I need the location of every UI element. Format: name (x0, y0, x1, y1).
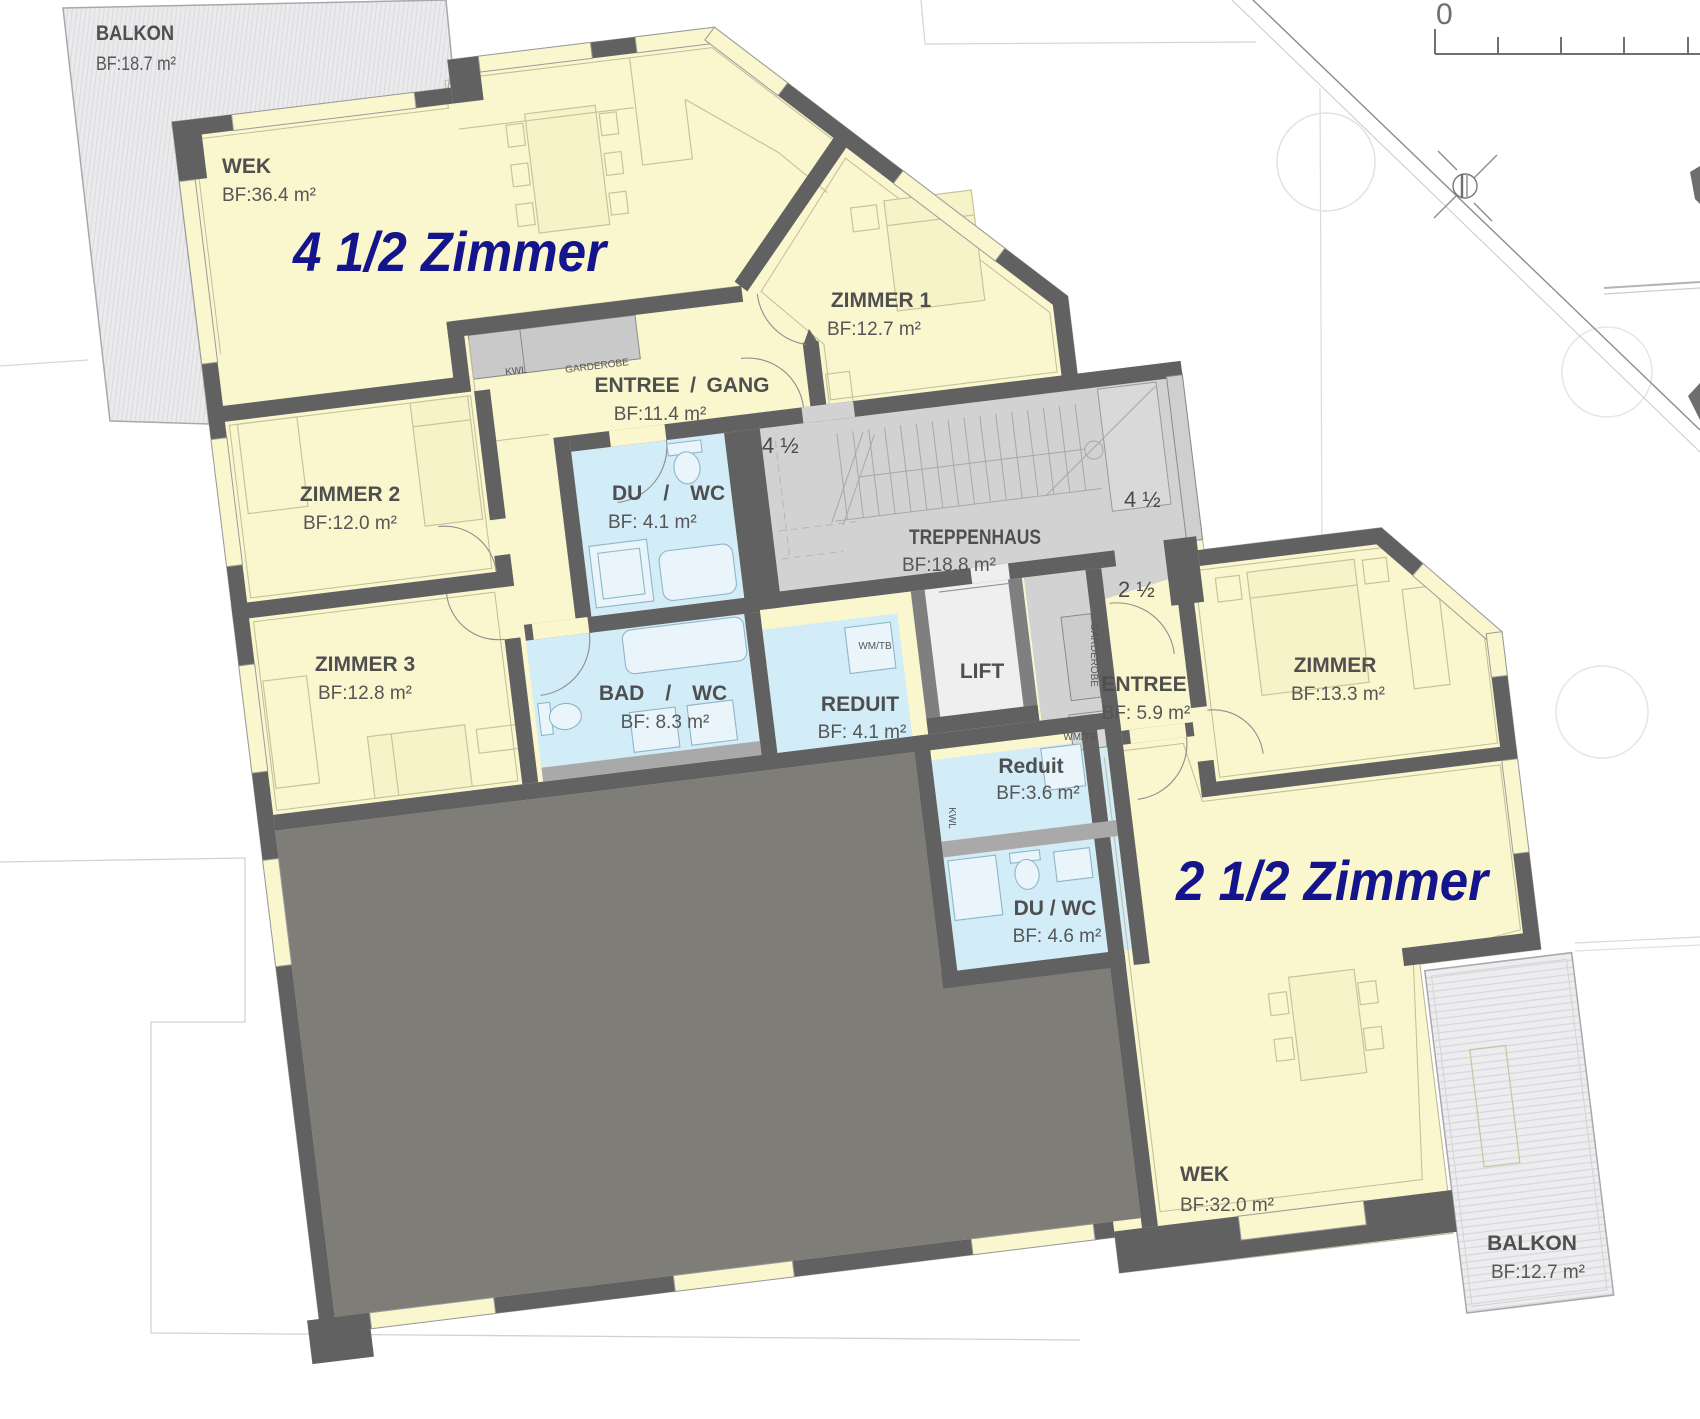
svg-text:BF:12.8 m²: BF:12.8 m² (318, 683, 412, 704)
svg-text:ZIMMER 2: ZIMMER 2 (300, 483, 400, 506)
svg-text:TREPPENHAUS: TREPPENHAUS (909, 526, 1041, 549)
svg-text:BF:12.7 m²: BF:12.7 m² (827, 319, 921, 340)
svg-text:DU / WC: DU / WC (612, 482, 725, 505)
svg-text:BF:11.4 m²: BF:11.4 m² (614, 404, 707, 425)
svg-text:BF: 4.1 m²: BF: 4.1 m² (608, 512, 697, 533)
svg-text:0: 0 (1436, 0, 1453, 31)
svg-text:Reduit: Reduit (998, 755, 1063, 778)
svg-text:BF: 4.6 m²: BF: 4.6 m² (1013, 926, 1102, 947)
svg-text:BAD / WC: BAD / WC (599, 682, 727, 705)
svg-text:4 1/2 Zimmer: 4 1/2 Zimmer (292, 220, 609, 283)
svg-text:LIFT: LIFT (960, 660, 1004, 683)
svg-text:BF:32.0 m²: BF:32.0 m² (1180, 1195, 1274, 1216)
svg-text:WEK: WEK (1180, 1163, 1229, 1186)
svg-text:WM/TB: WM/TB (1063, 732, 1097, 743)
svg-text:WEK: WEK (222, 155, 271, 178)
svg-text:ZIMMER 3: ZIMMER 3 (315, 653, 415, 676)
svg-text:BF:12.0 m²: BF:12.0 m² (303, 513, 397, 534)
svg-text:BF: 5.9 m²: BF: 5.9 m² (1102, 703, 1191, 724)
svg-text:BF:13.3 m²: BF:13.3 m² (1291, 684, 1385, 705)
svg-text:WM/TB: WM/TB (858, 641, 892, 652)
svg-text:BF: 8.3 m²: BF: 8.3 m² (621, 712, 710, 733)
svg-text:2 1/2 Zimmer: 2 1/2 Zimmer (1175, 849, 1491, 912)
svg-text:REDUIT: REDUIT (821, 693, 899, 716)
svg-text:BF:18.8 m²: BF:18.8 m² (902, 555, 996, 576)
svg-text:ZIMMER: ZIMMER (1294, 654, 1377, 677)
svg-text:DU / WC: DU / WC (1014, 897, 1097, 920)
svg-text:BF:12.7 m²: BF:12.7 m² (1491, 1262, 1585, 1283)
svg-text:BF:36.4 m²: BF:36.4 m² (222, 185, 316, 206)
svg-text:ZIMMER 1: ZIMMER 1 (831, 289, 932, 312)
svg-text:4 ½: 4 ½ (762, 433, 799, 458)
svg-text:KWL: KWL (946, 807, 957, 829)
svg-text:BF: 4.1 m²: BF: 4.1 m² (818, 722, 907, 743)
svg-text:ENTREE: ENTREE (1101, 673, 1186, 696)
svg-text:BALKON: BALKON (1487, 1232, 1577, 1255)
svg-text:ENTREE / GANG: ENTREE / GANG (594, 374, 769, 397)
svg-text:2 ½: 2 ½ (1118, 577, 1155, 602)
svg-text:BALKON: BALKON (96, 22, 174, 45)
svg-text:BF:18.7 m²: BF:18.7 m² (96, 54, 176, 75)
svg-text:GARDEROBE: GARDEROBE (1088, 623, 1099, 687)
svg-text:4 ½: 4 ½ (1124, 487, 1161, 512)
svg-text:BF:3.6 m²: BF:3.6 m² (996, 783, 1079, 804)
